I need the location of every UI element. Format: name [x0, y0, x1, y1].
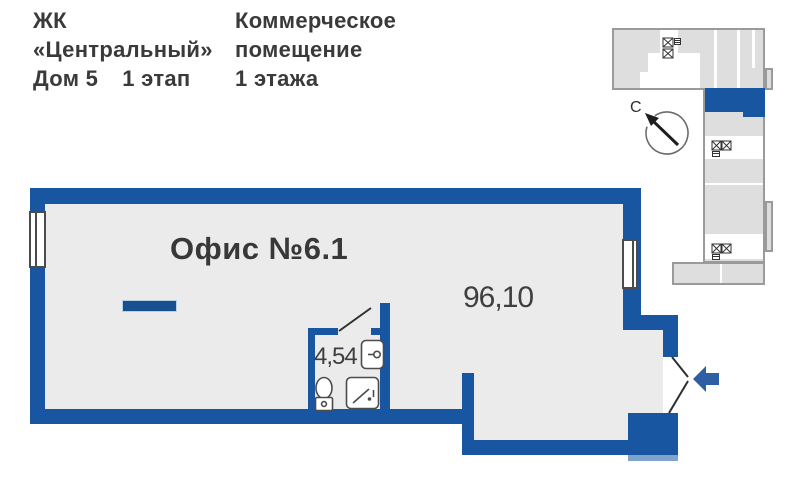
- complex-line1: ЖК: [33, 6, 213, 35]
- complex-title: ЖК «Центральный» Дом 5 1 этап: [33, 6, 213, 93]
- complex-line2: «Центральный»: [33, 35, 213, 64]
- wall-step: [462, 373, 474, 443]
- premises-line2: помещение: [235, 35, 396, 64]
- entrance-arrow-icon: [693, 366, 719, 392]
- bathroom-wall-top-left: [308, 328, 338, 335]
- compass-north-label: С: [630, 99, 642, 117]
- minimap-corridor-notch: [640, 72, 648, 88]
- window-icon: [29, 211, 46, 268]
- north-arrow-icon: [638, 104, 696, 162]
- entrance-nook-floor: [623, 330, 663, 373]
- window-icon: [622, 239, 638, 289]
- wall-entrance-upper: [663, 315, 678, 357]
- premises-type-title: Коммерческое помещение 1 этажа: [235, 6, 396, 93]
- minimap-unit-divider: [752, 30, 755, 68]
- main-area-value: 96,10: [463, 281, 533, 315]
- floor-plan-page: ЖК «Центральный» Дом 5 1 этап Коммерческ…: [0, 0, 800, 488]
- window-pane-line: [35, 213, 37, 266]
- minimap-corridor: [648, 53, 700, 88]
- minimap-elevator-shaft: [660, 30, 678, 56]
- wall-bottom-main: [30, 409, 462, 424]
- house-label: Дом 5: [33, 64, 98, 93]
- entrance-door-swing: [669, 357, 688, 413]
- wall-corner-shadow-edge: [628, 455, 678, 461]
- minimap-bottom-block: [672, 262, 765, 285]
- wall-top: [30, 188, 641, 204]
- stage-label: 1 этап: [122, 64, 190, 93]
- minimap-corridor: [705, 234, 763, 259]
- minimap-unit-divider: [737, 30, 740, 88]
- minimap-unit-divider: [720, 264, 722, 283]
- minimap-unit-divider: [714, 30, 717, 88]
- minimap-corridor: [705, 136, 763, 159]
- premises-line1: Коммерческое: [235, 6, 396, 35]
- minimap-current-unit-highlight-step: [743, 112, 765, 117]
- wall-entrance-lower-corner: [628, 413, 678, 457]
- bathroom-area-value: 4,54: [314, 343, 357, 371]
- bathroom-wall-right: [380, 303, 390, 412]
- minimap-right-wing-step: [765, 201, 773, 252]
- window-pane-line: [632, 241, 634, 287]
- minimap-top-wing-step: [765, 68, 773, 90]
- minimap-unit-divider: [705, 183, 763, 185]
- unit-title: Офис №6.1: [170, 231, 348, 267]
- premises-line3: 1 этажа: [235, 64, 396, 93]
- wall-pier-stub: [122, 300, 177, 312]
- minimap-current-unit-highlight: [705, 88, 765, 112]
